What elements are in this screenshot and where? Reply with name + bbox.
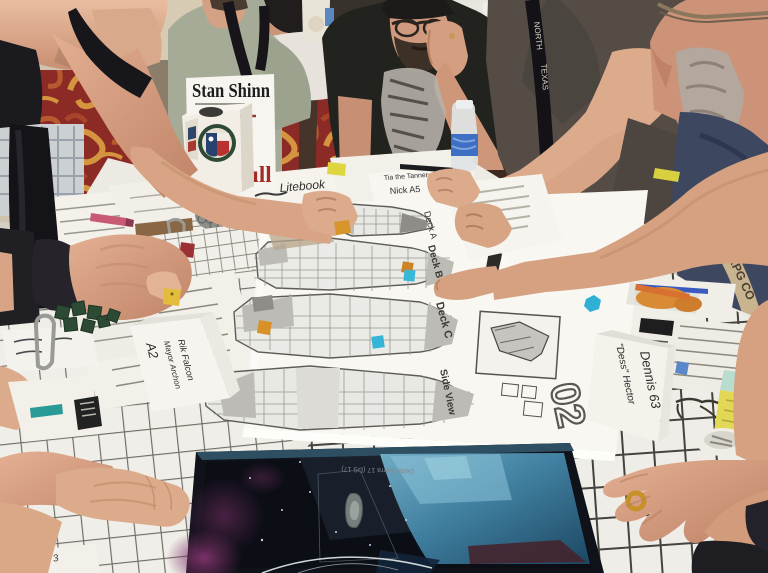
svg-text:Nick A5: Nick A5 <box>389 184 420 196</box>
svg-text:TEXAS: TEXAS <box>539 64 550 91</box>
svg-text:02: 02 <box>541 379 593 432</box>
svg-text:Stan Shinn: Stan Shinn <box>192 80 270 102</box>
